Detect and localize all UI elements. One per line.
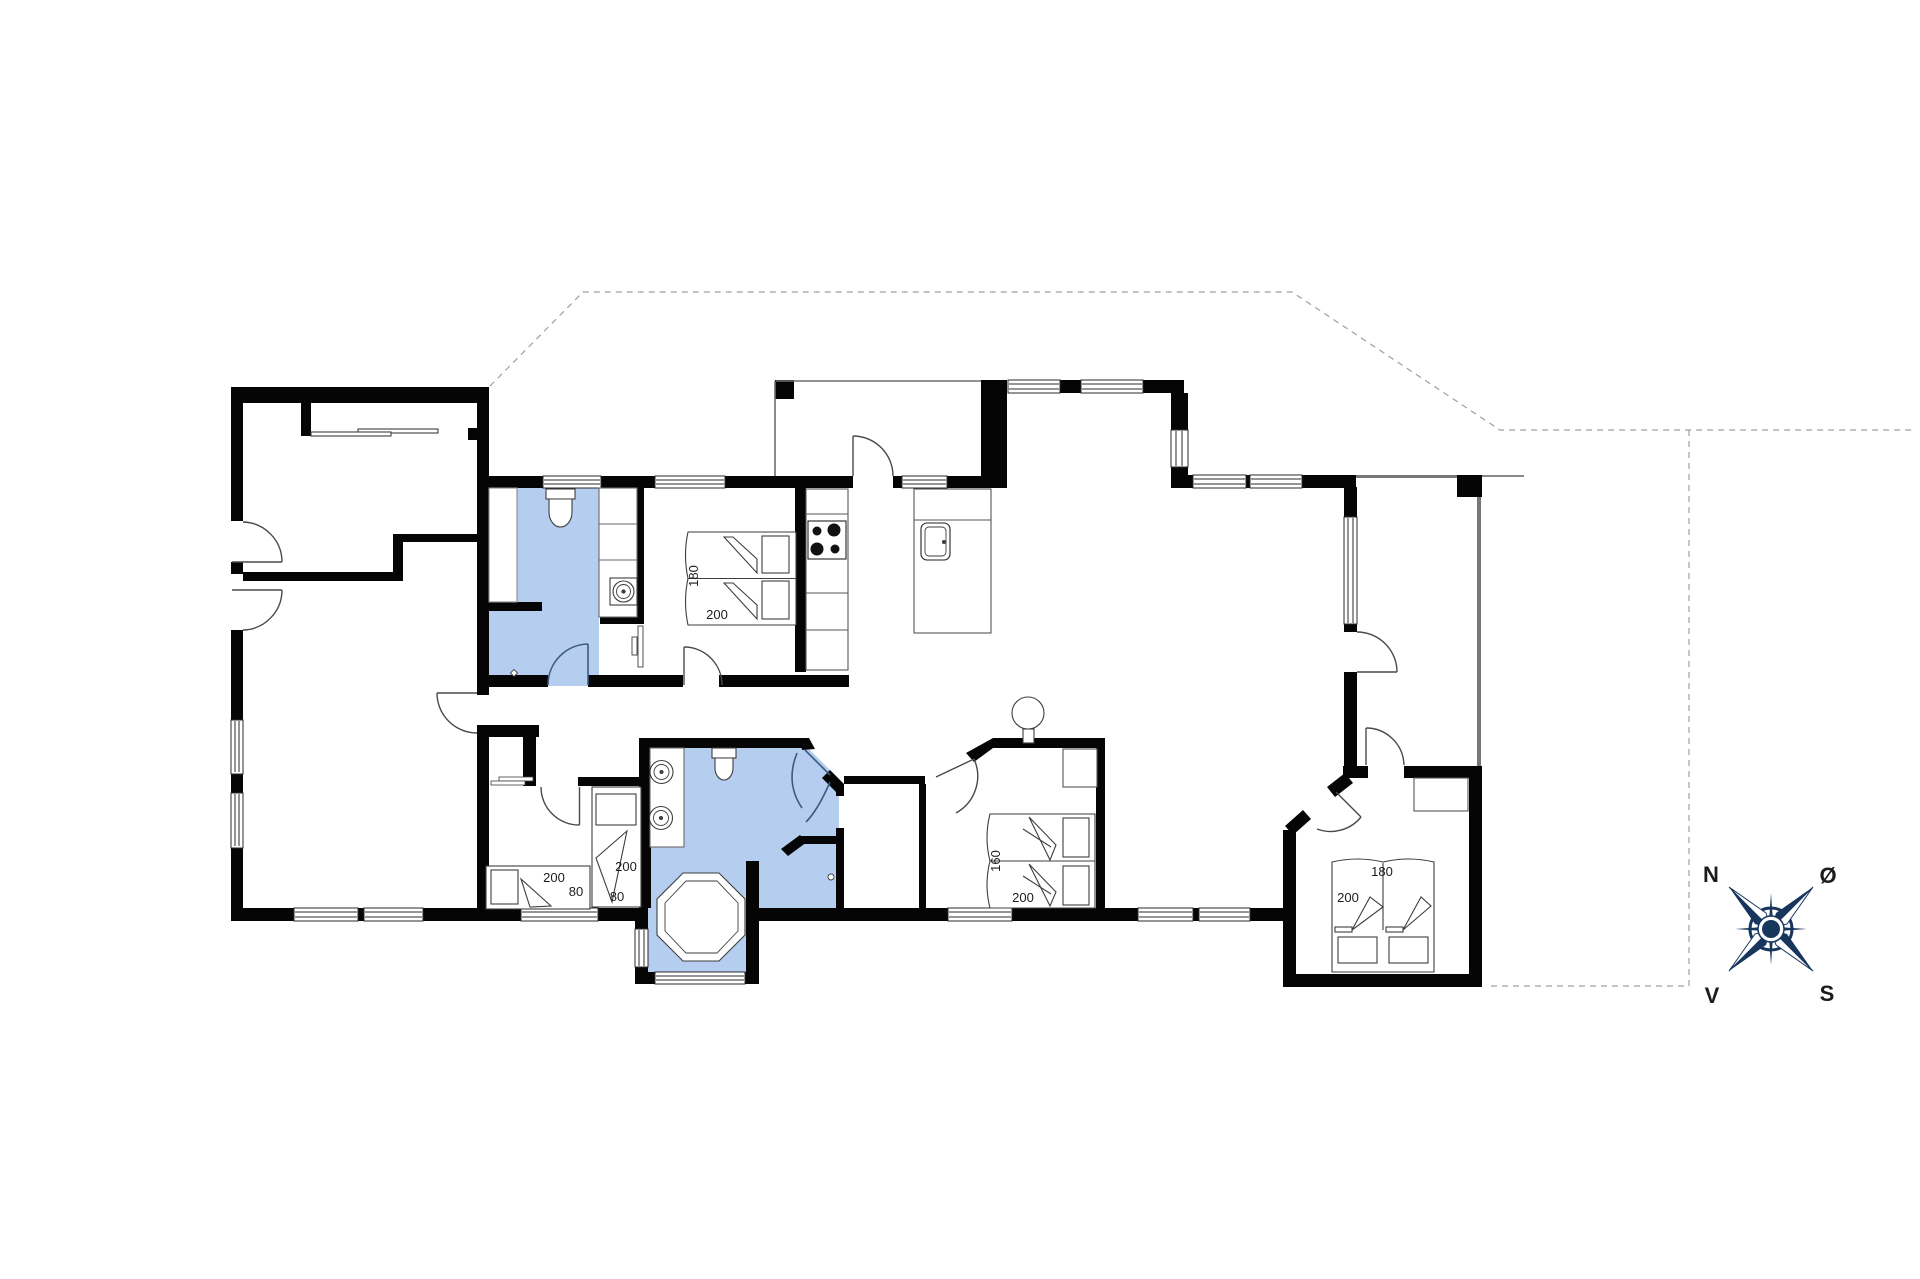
svg-text:V: V (1705, 983, 1720, 1008)
svg-text:200: 200 (1012, 890, 1034, 905)
svg-text:S: S (1820, 981, 1835, 1006)
svg-text:200: 200 (706, 607, 728, 622)
svg-text:200: 200 (543, 870, 565, 885)
svg-text:180: 180 (686, 565, 701, 587)
svg-text:Ø: Ø (1819, 863, 1836, 888)
svg-text:200: 200 (615, 859, 637, 874)
svg-text:N: N (1703, 862, 1719, 887)
svg-text:80: 80 (569, 884, 583, 899)
svg-text:160: 160 (988, 850, 1003, 872)
svg-text:80: 80 (610, 889, 624, 904)
svg-text:200: 200 (1337, 890, 1359, 905)
svg-text:180: 180 (1371, 864, 1393, 879)
